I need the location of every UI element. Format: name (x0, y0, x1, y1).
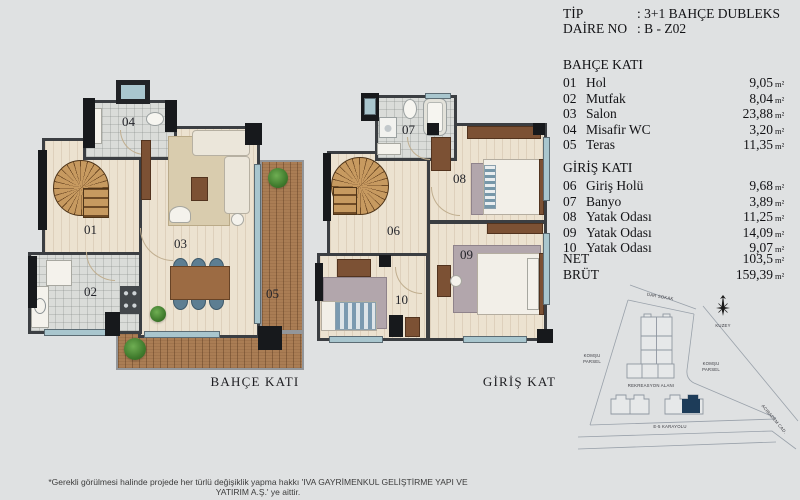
desk-chair (450, 275, 462, 287)
toilet-icon (146, 112, 164, 126)
label-neighbor-left-2: PARSEL (583, 359, 601, 364)
room-row: 07Banyo3,89m² (563, 195, 795, 211)
wardrobe (337, 259, 371, 277)
label-north: KUZEY (715, 323, 730, 328)
room-number: 08 (453, 171, 466, 187)
footer-disclaimer: *Gerekli görülmesi halinde projede her t… (38, 477, 478, 497)
stair-steps (333, 187, 357, 215)
wall-column (258, 326, 282, 350)
room-row: 06Giriş Holü9,68m² (563, 179, 795, 195)
plant (268, 168, 288, 188)
toilet-icon (403, 99, 417, 119)
net-value: 103,5 (715, 252, 773, 267)
duvet (335, 302, 376, 330)
window-glass (254, 164, 261, 324)
window-glass (463, 336, 527, 343)
daire-label: DAİRE NO (563, 21, 637, 36)
window-glass (543, 137, 550, 201)
window-glass (44, 329, 110, 336)
plant (124, 338, 146, 360)
floorplan-bahce-kati: 01 02 03 04 05 (28, 80, 304, 372)
room-list-bahce: 01Hol9,05m² 02Mutfak8,04m² 03Salon23,88m… (563, 76, 795, 154)
unit: m² (773, 108, 795, 123)
unit: m² (773, 253, 795, 268)
wall-column (533, 123, 545, 135)
window-glass (425, 93, 451, 99)
window-frame (315, 263, 323, 301)
compass-icon (716, 295, 730, 316)
room-row: 01Hol9,05m² (563, 76, 795, 92)
wardrobe (487, 223, 543, 234)
net-label: NET (563, 252, 715, 267)
tv-unit (141, 140, 151, 200)
wall-column (105, 312, 120, 336)
tip-value: : 3+1 BAHÇE DUBLEKS (637, 6, 780, 21)
wall-column (245, 123, 262, 145)
dining-table (170, 266, 230, 300)
pillows (484, 165, 496, 209)
wall-column (389, 315, 403, 337)
unit: m² (773, 211, 795, 226)
stair-steps (83, 188, 109, 218)
wall-column (427, 123, 439, 135)
window-frame (323, 153, 331, 221)
room-number: 06 (387, 223, 400, 239)
room-number: 07 (402, 122, 415, 138)
unit: m² (773, 227, 795, 242)
label-neighbor-left-1: KOMŞU (584, 353, 601, 358)
sofa-side (224, 156, 250, 214)
room-row: 08Yatak Odası11,25m² (563, 210, 795, 226)
unit: m² (773, 77, 795, 92)
unit: m² (773, 139, 795, 154)
tip-row: TİP : 3+1 BAHÇE DUBLEKS (563, 6, 795, 21)
pillows (527, 258, 539, 310)
stove (120, 286, 140, 314)
highlighted-unit (682, 395, 700, 413)
fridge (46, 260, 72, 286)
wall-column (83, 98, 95, 148)
washing-machine (379, 117, 397, 138)
wall-column (537, 329, 553, 343)
shaft-glass (364, 98, 376, 115)
sofa-top (192, 130, 250, 156)
side-table (231, 213, 244, 226)
label-neighbor-right-2: PARSEL (702, 367, 720, 372)
desk (437, 265, 451, 297)
room-number: 09 (460, 247, 473, 263)
caption-bahce-kati: BAHÇE KATI (185, 374, 325, 390)
net-row: NET103,5m² (563, 252, 795, 268)
coffee-table (191, 177, 208, 201)
caption-giris-kat: GİRİŞ KAT (452, 374, 587, 390)
unit: m² (773, 93, 795, 108)
room-row: 05Teras11,35m² (563, 138, 795, 154)
room-row: 04Misafir WC3,20m² (563, 123, 795, 139)
bath-sink-counter (377, 143, 401, 155)
room-number: 03 (174, 236, 187, 252)
site-roads (578, 285, 798, 449)
room-list-giris: 06Giriş Holü9,68m² 07Banyo3,89m² 08Yatak… (563, 179, 795, 257)
wardrobe (467, 126, 541, 139)
unit: m² (773, 124, 795, 139)
shaft (116, 80, 150, 104)
room-row: 09Yatak Odası14,09m² (563, 226, 795, 242)
label-street-top: DAR SOKAK (647, 292, 674, 302)
room-number: 02 (84, 284, 97, 300)
unit-header: TİP : 3+1 BAHÇE DUBLEKS DAİRE NO : B - Z… (563, 6, 795, 36)
wardrobe (431, 137, 451, 171)
room-row: 02Mutfak8,04m² (563, 92, 795, 108)
room-number: 10 (395, 292, 408, 308)
desk (405, 317, 420, 337)
wall-column (165, 100, 177, 132)
floorplan-giris-kat: 06 07 08 09 10 (315, 93, 557, 349)
room-number: 04 (122, 114, 135, 130)
wall-column (379, 255, 391, 267)
label-highway: E-5 KARAYOLU (653, 424, 686, 429)
tip-label: TİP (563, 6, 637, 21)
window-glass (329, 336, 383, 343)
daire-row: DAİRE NO : B - Z02 (563, 21, 795, 36)
room-number: 05 (266, 286, 279, 302)
site-plan: DAR SOKAK KUZEY KOMŞU PARSEL KOMŞU PARSE… (570, 278, 800, 460)
unit: m² (773, 180, 795, 195)
window-glass (543, 233, 550, 305)
window-glass (144, 331, 220, 338)
section-title-bahce: BAHÇE KATI (563, 57, 795, 73)
unit: m² (773, 196, 795, 211)
plant (150, 306, 166, 322)
window-frame (38, 150, 47, 230)
room-number: 01 (84, 222, 97, 238)
label-recreation: REKREASYON ALANI (628, 383, 674, 388)
label-neighbor-right-1: KOMŞU (703, 361, 720, 366)
room-row: 03Salon23,88m² (563, 107, 795, 123)
armchair (169, 206, 191, 223)
window-frame (28, 256, 37, 308)
daire-value: : B - Z02 (637, 21, 686, 36)
brochure-page: 01 02 03 04 05 (0, 0, 800, 500)
section-title-giris: GİRİŞ KATI (563, 160, 795, 176)
